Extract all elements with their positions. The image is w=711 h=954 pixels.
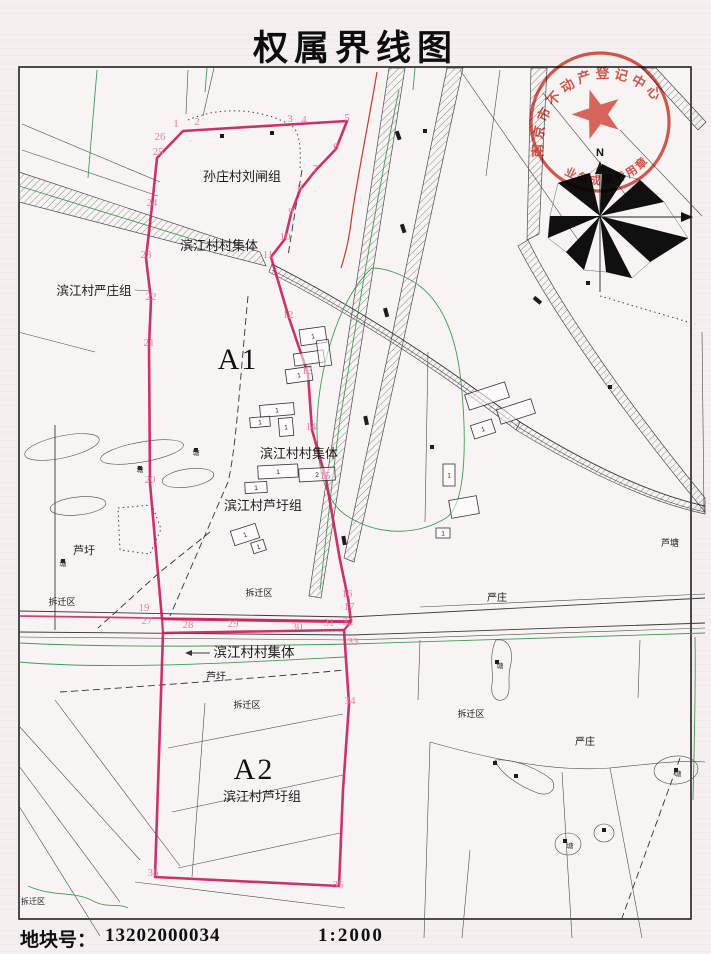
boundary-point-6: 6 <box>333 141 339 153</box>
parcel-a2-label: A2 <box>234 753 275 786</box>
building: 1 <box>436 528 450 538</box>
parcel-number-label: 地块号： <box>20 925 96 952</box>
boundary-point-13: 13 <box>302 365 314 377</box>
parcel-a1-label: A1 <box>218 343 259 376</box>
building: 1 <box>250 416 271 428</box>
label-demolition-zone-2: 拆迁区 <box>245 587 272 598</box>
label-binjiang-collective-1: 滨江村村集体 <box>180 238 258 253</box>
label-sunzhuang-liuzha-group: 孙庄村刘闸组 <box>203 169 281 184</box>
boundary-point-12: 12 <box>283 309 294 321</box>
boundary-point-19: 19 <box>139 602 151 614</box>
label-yanzhuang-2: 严庄 <box>575 735 595 748</box>
pond-label-6: 塘 <box>567 841 574 850</box>
boundary-point-34: 34 <box>345 695 357 707</box>
label-lutang: 芦塘 <box>661 537 679 548</box>
pond-marker <box>270 131 274 135</box>
boundary-point-28: 28 <box>183 619 195 631</box>
footer: 地块号： 13202000034 1:2000 <box>0 923 711 953</box>
pond-label-1: 塘 <box>193 448 200 457</box>
boundary-point-36: 36 <box>148 867 160 879</box>
boundary-point-23: 23 <box>141 249 153 261</box>
label-binjiang-collective-2: 滨江村村集体 <box>260 446 338 461</box>
boundary-point-14: 14 <box>306 421 318 433</box>
pond-marker <box>493 761 497 765</box>
map-scale: 1:2000 <box>318 925 384 947</box>
pond-label-5: 塘 <box>675 769 682 778</box>
pond-marker <box>608 385 612 389</box>
boundary-point-5: 5 <box>344 112 350 124</box>
label-binjiang-collective-3: 滨江村村集体 <box>214 645 295 660</box>
label-demolition-zone-3: 拆迁区 <box>233 699 260 710</box>
boundary-point-33: 33 <box>348 636 360 648</box>
pond-marker <box>514 774 518 778</box>
boundary-point-8: 8 <box>297 182 303 194</box>
boundary-point-11: 11 <box>263 249 274 261</box>
svg-text:1: 1 <box>441 530 445 537</box>
boundary-point-20: 20 <box>145 474 157 486</box>
boundary-point-25: 25 <box>153 146 165 158</box>
north-label: N <box>596 147 604 159</box>
pond-label-2: 塘 <box>137 465 144 474</box>
boundary-point-15: 15 <box>320 470 332 482</box>
building: 1 <box>245 481 268 493</box>
building: 1 <box>258 464 299 479</box>
boundary-point-32: 32 <box>343 616 354 628</box>
boundary-point-29: 29 <box>228 618 240 630</box>
boundary-point-17: 17 <box>344 601 356 613</box>
pond-marker <box>423 129 427 133</box>
boundary-point-2: 2 <box>194 116 200 128</box>
boundary-point-22: 22 <box>146 291 157 303</box>
boundary-point-10: 10 <box>280 231 292 243</box>
boundary-point-31: 31 <box>324 617 335 629</box>
building: 1 <box>443 464 455 486</box>
boundary-point-3: 3 <box>287 113 293 125</box>
boundary-point-1: 1 <box>173 118 179 130</box>
label-binjiang-luxu-group-2: 滨江村芦圩组 <box>223 789 301 804</box>
label-demolition-zone-1: 拆迁区 <box>48 596 75 607</box>
label-binjiang-yanzhuang-group: 滨江村严庄组 <box>56 283 131 298</box>
boundary-point-35: 35 <box>333 879 345 891</box>
svg-text:1: 1 <box>447 472 451 479</box>
label-luxu-1: 芦圩 <box>73 544 95 557</box>
boundary-point-24: 24 <box>147 197 159 209</box>
label-luxu-2: 芦圩 <box>206 670 226 683</box>
label-demolition-zone-4: 拆迁区 <box>457 708 484 719</box>
boundary-point-27: 27 <box>142 615 154 627</box>
pond-marker <box>220 134 224 138</box>
pond-marker <box>602 828 606 832</box>
boundary-point-7: 7 <box>312 163 318 175</box>
parcel-number-value: 13202000034 <box>105 925 221 947</box>
label-demolition-zone-5: 拆迁区 <box>21 896 45 906</box>
building: 1 <box>278 417 294 436</box>
boundary-point-9: 9 <box>288 206 294 218</box>
pond-label-3: 塘 <box>60 559 67 568</box>
boundary-point-4: 4 <box>301 114 307 126</box>
building: 1 <box>260 403 295 418</box>
label-yanzhuang-1: 严庄 <box>487 591 507 604</box>
pond-label-4: 塘 <box>497 661 504 670</box>
boundary-point-16: 16 <box>342 588 354 600</box>
boundary-point-26: 26 <box>155 131 167 143</box>
boundary-point-21: 21 <box>144 337 155 349</box>
boundary-point-30: 30 <box>292 621 304 633</box>
pond-marker <box>586 281 590 285</box>
label-binjiang-luxu-group-1: 滨江村芦圩组 <box>224 498 302 513</box>
pond-marker <box>430 445 434 449</box>
cadastral-map: 1111112111111 孙庄村刘闸组滨江村村集体滨江村严庄组滨江村村集体滨江… <box>0 0 711 954</box>
